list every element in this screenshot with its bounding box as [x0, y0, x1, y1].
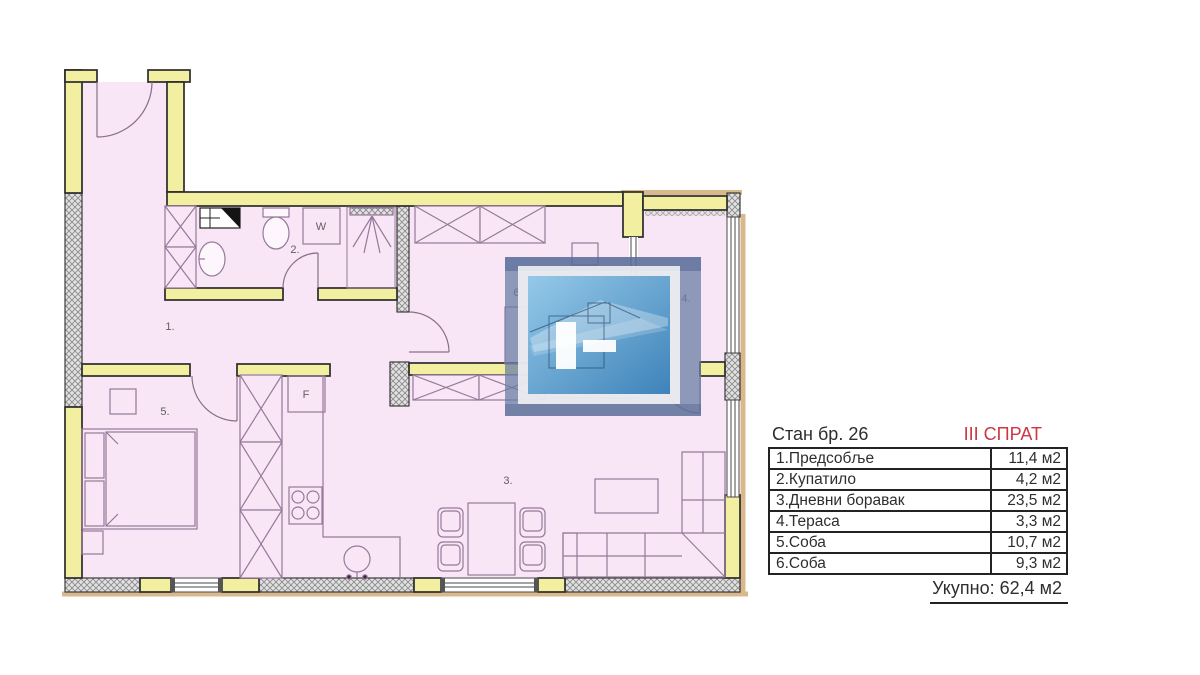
room-area: 10,7 м2: [992, 534, 1066, 552]
table-row: 4.Тераса 3,3 м2: [770, 512, 1066, 533]
total-row: Укупно: 62,4 м2: [768, 578, 1068, 604]
area-table: 1.Предсобље 11,4 м2 2.Купатило 4,2 м2 3.…: [768, 447, 1068, 575]
label-fridge: F: [303, 389, 310, 401]
table-row: 2.Купатило 4,2 м2: [770, 470, 1066, 491]
room-name: 5.Соба: [770, 533, 992, 552]
apartment-title: Стан бр. 26: [772, 424, 868, 445]
living-window: [441, 578, 538, 592]
room-area: 23,5 м2: [992, 492, 1066, 510]
room-area: 11,4 м2: [992, 450, 1066, 468]
room-name: 4.Тераса: [770, 512, 992, 531]
wardrobe-column: [240, 375, 282, 578]
terrace-edge-strip: [645, 210, 725, 216]
table-row: 5.Соба 10,7 м2: [770, 533, 1066, 554]
label-bedroom-5: 5.: [160, 406, 169, 418]
right-window: [727, 400, 739, 497]
label-living-room: 3.: [503, 475, 512, 487]
wardrobe-bathroom: [165, 206, 196, 288]
table-row: 3.Дневни боравак 23,5 м2: [770, 491, 1066, 512]
terrace-glazing: [727, 217, 739, 353]
bathroom-cabinet: [200, 208, 240, 228]
room-name: 2.Купатило: [770, 470, 992, 489]
room-area: 4,2 м2: [992, 471, 1066, 489]
room-area: 3,3 м2: [992, 513, 1066, 531]
floor-title: III СПРАТ: [964, 424, 1042, 445]
table-row: 1.Предсобље 11,4 м2: [770, 449, 1066, 470]
wardrobe-bedroom6: [415, 206, 545, 243]
room-name: 1.Предсобље: [770, 449, 992, 468]
table-header: Стан бр. 26 III СПРАТ: [768, 424, 1068, 447]
room-name: 6.Соба: [770, 554, 992, 573]
room-area: 9,3 м2: [992, 555, 1066, 573]
room-name: 3.Дневни боравак: [770, 491, 992, 510]
bath-sink: [199, 242, 225, 276]
bedroom5-window: [171, 578, 222, 592]
label-bathroom: 2.: [290, 244, 299, 256]
table-row: 6.Соба 9,3 м2: [770, 554, 1066, 573]
total-label: Укупно: 62,4 м2: [930, 578, 1068, 604]
label-washing-machine: W: [316, 221, 327, 233]
label-hallway: 1.: [165, 321, 174, 333]
toilet: [263, 208, 289, 249]
page: { "header": { "apartment_label": "Стан б…: [0, 0, 1200, 675]
watermark-logo: [505, 257, 701, 416]
